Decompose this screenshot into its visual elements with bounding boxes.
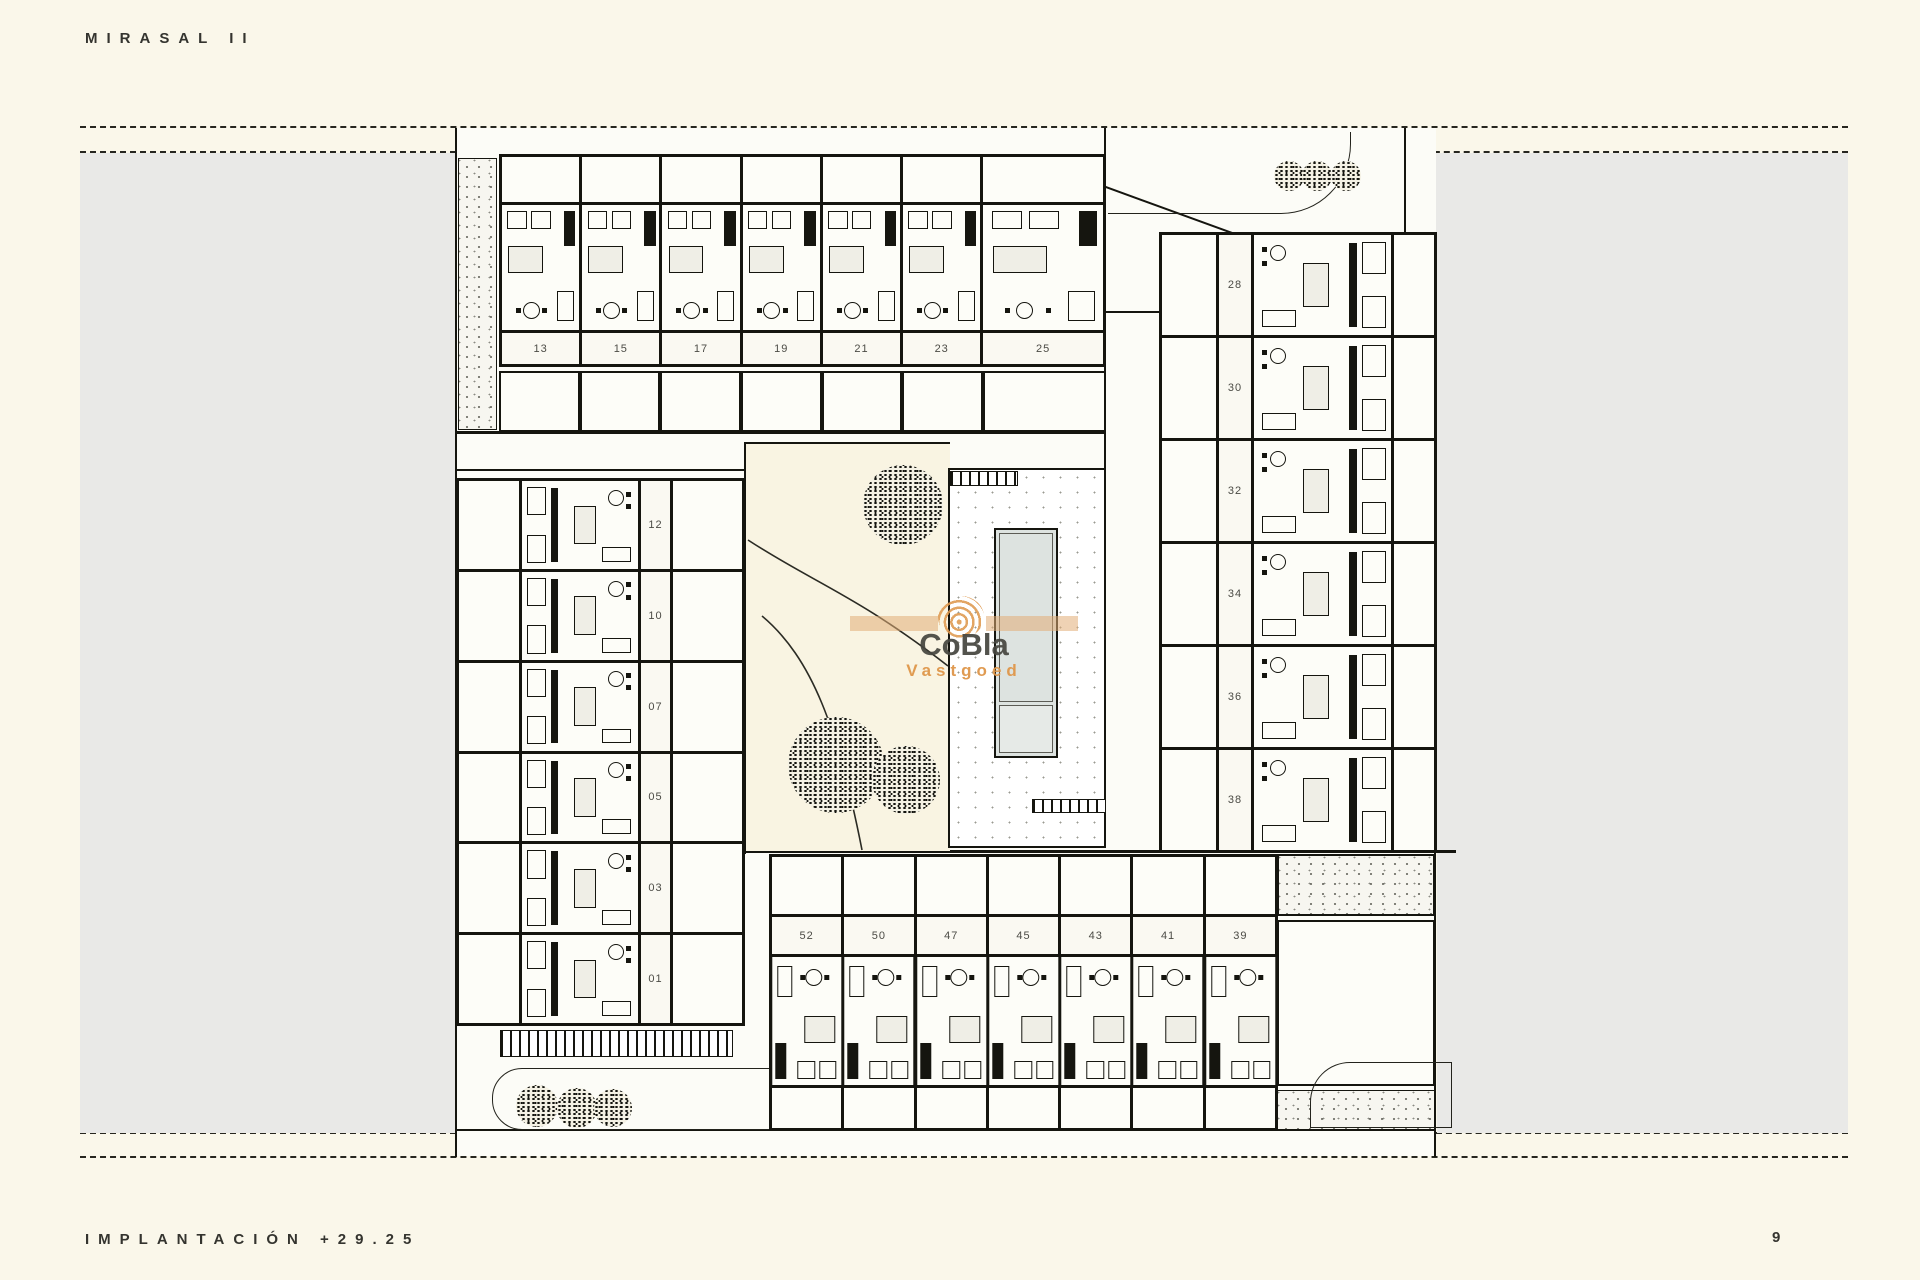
terrace-cell: [1162, 441, 1216, 541]
terrace-cell: [582, 157, 659, 202]
terrace-cell: [673, 663, 742, 751]
garden-cell: [917, 1088, 986, 1128]
unit-number-label: 21: [823, 333, 900, 364]
plan-sheet: MIRASAL II IMPLANTACIÓN +29.25 9 1315171…: [0, 0, 1920, 1280]
terrace-cell: [772, 857, 841, 914]
terrace-cell: [673, 935, 742, 1023]
unit-floorplan: [772, 957, 841, 1085]
site-boundary-line: [80, 1156, 1848, 1158]
unit-floorplan: [1206, 957, 1275, 1085]
unit-number-label: 50: [844, 917, 913, 954]
top-garden-band: [499, 371, 1106, 432]
unit-floorplan: [662, 205, 739, 330]
unit-floorplan: [1133, 957, 1202, 1085]
tree: [516, 1085, 558, 1127]
unit-floorplan: [1254, 647, 1391, 747]
unit-floorplan: [823, 205, 900, 330]
garden-cell: [1394, 750, 1434, 850]
unit-floorplan: [522, 481, 638, 569]
garden-cell: [459, 481, 519, 569]
unit-floorplan: [1254, 441, 1391, 541]
unit-number-label: 30: [1219, 338, 1251, 438]
parking-pergola-hatch: [500, 1030, 733, 1057]
tree: [1331, 161, 1361, 191]
unit-number-label: 28: [1219, 235, 1251, 335]
garden-cell: [1061, 1088, 1130, 1128]
terrace-cell: [1162, 544, 1216, 644]
swimming-pool: [994, 528, 1058, 758]
terrace-cell: [823, 157, 900, 202]
terrace-cell: [673, 754, 742, 842]
garden-cell: [459, 844, 519, 932]
unit-number-label: 34: [1219, 544, 1251, 644]
unit-floorplan: [989, 957, 1058, 1085]
garden-cell: [989, 1088, 1058, 1128]
unit-number-label: 25: [983, 333, 1103, 364]
terrace-cell: [1162, 750, 1216, 850]
terrace-cell: [1206, 857, 1275, 914]
pool-steps: [999, 705, 1053, 753]
terrace-cell: [1162, 338, 1216, 438]
left-column-block: 121007050301: [456, 478, 745, 1026]
page-number: 9: [1772, 1229, 1780, 1246]
unit-number-label: 05: [641, 754, 670, 842]
terrace-cell: [662, 157, 739, 202]
garden-cell: [459, 935, 519, 1023]
unit-number-label: 10: [641, 572, 670, 660]
adjacent-parcel-right: [1437, 153, 1848, 1133]
terrace-cell: [502, 157, 579, 202]
adjacent-parcel-left: [80, 153, 456, 1133]
unit-number-label: 36: [1219, 647, 1251, 747]
unit-number-label: 32: [1219, 441, 1251, 541]
terrace-cell: [1061, 857, 1130, 914]
terrace-cell: [1133, 857, 1202, 914]
right-column-block: 283032343638: [1159, 232, 1437, 853]
garden-cell: [1394, 441, 1434, 541]
unit-floorplan: [1254, 235, 1391, 335]
unit-number-label: 38: [1219, 750, 1251, 850]
unit-number-label: 43: [1061, 917, 1130, 954]
terrace-cell: [903, 157, 980, 202]
tree: [1302, 161, 1332, 191]
unit-floorplan: [983, 205, 1103, 330]
unit-floorplan: [1254, 544, 1391, 644]
garden-cell: [824, 373, 901, 430]
page-title: MIRASAL II: [85, 30, 256, 47]
terrace-cell: [1277, 854, 1435, 916]
tree: [1274, 161, 1304, 191]
terrace-cell: [989, 857, 1058, 914]
unit-number-label: 52: [772, 917, 841, 954]
tree: [594, 1089, 632, 1127]
garden-cell: [985, 373, 1104, 430]
unit-floorplan: [1254, 338, 1391, 438]
unit-floorplan: [522, 572, 638, 660]
unit-floorplan: [743, 205, 820, 330]
unit-number-label: 23: [903, 333, 980, 364]
terrace-cell: [673, 572, 742, 660]
unit-floorplan: [522, 663, 638, 751]
garden-strip: [458, 158, 497, 430]
unit-floorplan: [917, 957, 986, 1085]
unit-floorplan: [844, 957, 913, 1085]
unit-floorplan: [1061, 957, 1130, 1085]
unit-number-label: 07: [641, 663, 670, 751]
unit-number-label: 13: [502, 333, 579, 364]
unit-number-label: 19: [743, 333, 820, 364]
pergola-hatch: [950, 471, 1018, 486]
garden-cell: [501, 373, 578, 430]
unit-floorplan: [522, 844, 638, 932]
bottom-row-block: 52504745434139: [769, 854, 1278, 1131]
unit-number-label: 41: [1133, 917, 1202, 954]
unit-floorplan: [582, 205, 659, 330]
unit-floorplan: [522, 935, 638, 1023]
unit-number-label: 01: [641, 935, 670, 1023]
garden-cell: [582, 373, 659, 430]
garden-cell: [459, 663, 519, 751]
unit-number-label: 47: [917, 917, 986, 954]
pool-water: [999, 533, 1053, 702]
garden-cell: [1394, 544, 1434, 644]
terrace-cell: [743, 157, 820, 202]
unit-floorplan: [522, 754, 638, 842]
tree: [557, 1088, 597, 1128]
unit-number-label: 15: [582, 333, 659, 364]
unit-number-label: 17: [662, 333, 739, 364]
terrace-cell: [673, 481, 742, 569]
unit-floorplan: [1254, 750, 1391, 850]
unit-number-label: 45: [989, 917, 1058, 954]
garden-cell: [459, 572, 519, 660]
tree: [788, 717, 884, 813]
planting-bed: [1310, 1062, 1452, 1128]
garden-cell: [772, 1088, 841, 1128]
unit-floorplan: [903, 205, 980, 330]
top-row-block: 13151719212325: [499, 154, 1106, 367]
garden-cell: [662, 373, 739, 430]
unit-number-label: 03: [641, 844, 670, 932]
garden-cell: [1206, 1088, 1275, 1128]
garden-cell: [459, 754, 519, 842]
terrace-cell: [917, 857, 986, 914]
garden-cell: [1133, 1088, 1202, 1128]
terrace-cell: [1162, 235, 1216, 335]
unit-floorplan: [502, 205, 579, 330]
garden-cell: [904, 373, 981, 430]
garden-cell: [1394, 235, 1434, 335]
garden-cell: [844, 1088, 913, 1128]
terrace-cell: [983, 157, 1103, 202]
garden-cell: [1394, 338, 1434, 438]
garden-cell: [1394, 647, 1434, 747]
terrace-cell: [844, 857, 913, 914]
unit-number-label: 12: [641, 481, 670, 569]
unit-number-label: 39: [1206, 917, 1275, 954]
footer-plan-label: IMPLANTACIÓN +29.25: [85, 1231, 420, 1248]
tree: [863, 465, 943, 545]
terrace-cell: [673, 844, 742, 932]
garden-cell: [743, 373, 820, 430]
terrace-cell: [1162, 647, 1216, 747]
pergola-hatch: [1032, 799, 1106, 813]
tree: [872, 746, 940, 814]
